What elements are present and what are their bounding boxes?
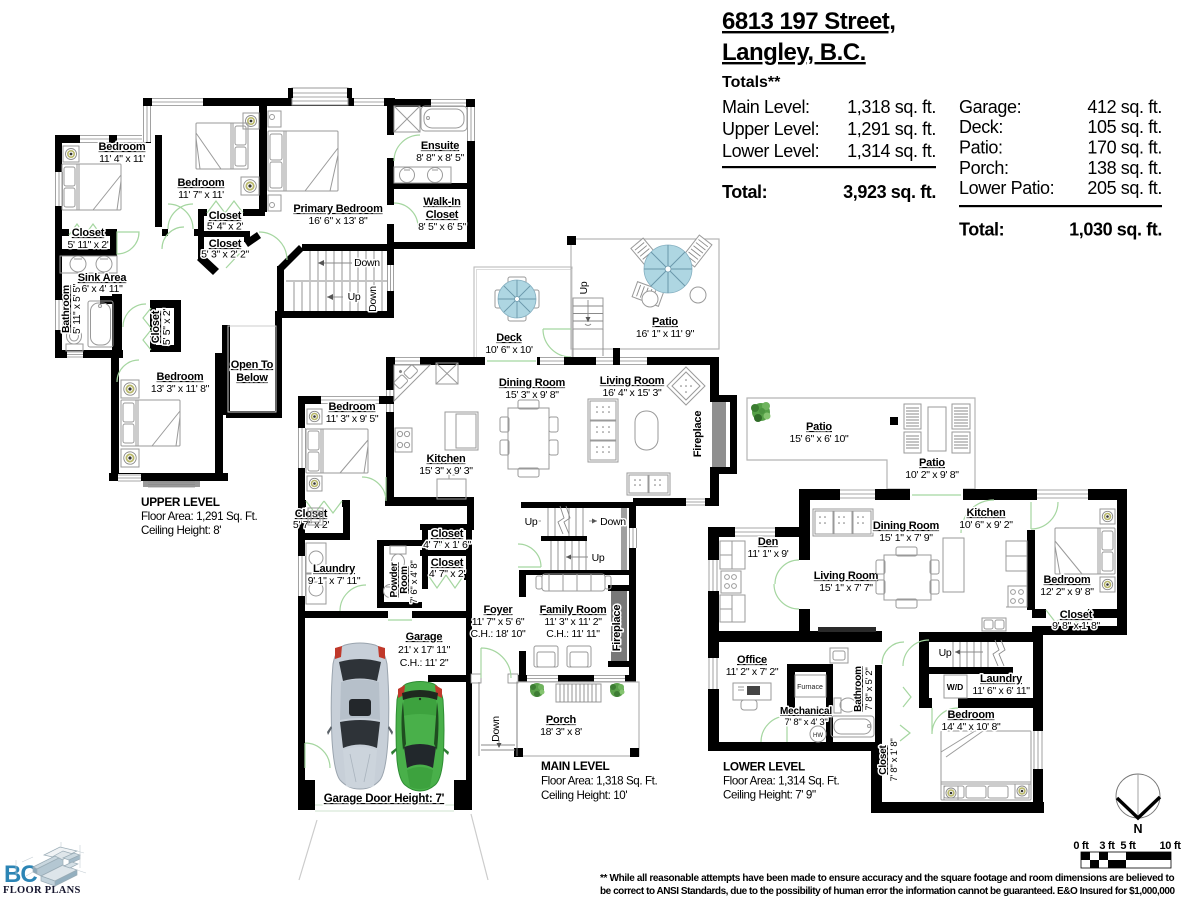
svg-text:15' 3" x 9' 3": 15' 3" x 9' 3" (419, 465, 473, 477)
svg-text:Dining Room: Dining Room (873, 520, 940, 532)
svg-text:Bedroom: Bedroom (157, 371, 204, 383)
svg-text:Fireplace: Fireplace (611, 605, 623, 652)
svg-text:5' 3" x 2' 2": 5' 3" x 2' 2" (201, 249, 249, 261)
svg-text:Down: Down (367, 286, 379, 312)
svg-text:Totals**: Totals** (722, 74, 781, 91)
svg-text:205 sq. ft.: 205 sq. ft. (1087, 178, 1162, 198)
svg-text:11' 6" x 6' 11": 11' 6" x 6' 11" (972, 685, 1030, 697)
svg-text:11' 4" x 11': 11' 4" x 11' (99, 153, 145, 165)
svg-text:Closet: Closet (426, 209, 459, 221)
svg-text:Garage:: Garage: (959, 97, 1021, 117)
svg-text:Patio: Patio (806, 421, 832, 433)
svg-text:Family Room: Family Room (540, 604, 607, 616)
svg-text:1,314 sq. ft.: 1,314 sq. ft. (847, 141, 936, 161)
svg-text:be correct to ANSI Standards,: be correct to ANSI Standards, due to the… (600, 886, 1175, 897)
svg-text:Lower Level:: Lower Level: (722, 141, 819, 161)
svg-text:11' 1" x 9': 11' 1" x 9' (747, 548, 788, 560)
svg-text:Mechanical: Mechanical (780, 706, 832, 717)
svg-text:Total:: Total: (722, 182, 767, 202)
svg-text:9' 1" x 7' 11": 9' 1" x 7' 11" (308, 575, 361, 587)
svg-text:16' 6" x 13' 8": 16' 6" x 13' 8" (309, 215, 368, 227)
svg-text:Up: Up (939, 647, 952, 659)
svg-text:Office: Office (737, 654, 767, 666)
svg-text:11' 3" x 11' 2": 11' 3" x 11' 2" (544, 616, 602, 628)
svg-text:10' 6" x 10': 10' 6" x 10' (485, 344, 533, 356)
svg-text:Up: Up (348, 291, 361, 303)
svg-text:11' 7" x 11': 11' 7" x 11' (178, 189, 224, 201)
svg-text:** While all reasonable attemp: ** While all reasonable attempts have be… (600, 873, 1174, 884)
svg-text:13' 3" x 11' 8": 13' 3" x 11' 8" (151, 383, 210, 395)
svg-text:UPPER LEVEL: UPPER LEVEL (141, 495, 220, 509)
svg-text:Closet: Closet (72, 227, 105, 239)
svg-text:MAIN LEVEL: MAIN LEVEL (541, 759, 610, 773)
svg-text:18' 3" x 8': 18' 3" x 8' (540, 726, 582, 738)
svg-text:12' 2" x 9' 8": 12' 2" x 9' 8" (1040, 586, 1094, 598)
svg-text:Living Room: Living Room (814, 570, 879, 582)
svg-text:11' 7" x 5' 6": 11' 7" x 5' 6" (472, 616, 525, 628)
svg-text:7' 8" x 1' 8": 7' 8" x 1' 8" (889, 739, 900, 782)
svg-text:Floor Area: 1,318 Sq. Ft.: Floor Area: 1,318 Sq. Ft. (541, 775, 657, 788)
svg-text:138 sq. ft.: 138 sq. ft. (1087, 158, 1162, 178)
svg-text:Kitchen: Kitchen (427, 453, 466, 465)
svg-text:Garage Door Height: 7': Garage Door Height: 7' (324, 793, 445, 805)
svg-text:15' 1" x 7' 9": 15' 1" x 7' 9" (879, 532, 933, 544)
svg-text:Dining Room: Dining Room (499, 377, 566, 389)
svg-text:10' 6" x 9' 2": 10' 6" x 9' 2" (959, 519, 1013, 531)
svg-text:16' 1" x 11' 9": 16' 1" x 11' 9" (636, 328, 695, 340)
svg-text:Total:: Total: (959, 220, 1004, 240)
svg-text:Bathroom: Bathroom (60, 285, 72, 333)
svg-text:C.H.: 11' 2": C.H.: 11' 2" (400, 657, 449, 669)
svg-text:4' 7" x 1' 6": 4' 7" x 1' 6" (423, 539, 471, 551)
svg-text:Ensuite: Ensuite (421, 140, 459, 152)
svg-text:Laundry: Laundry (980, 673, 1023, 685)
svg-text:1,291 sq. ft.: 1,291 sq. ft. (847, 119, 936, 139)
svg-text:Bedroom: Bedroom (948, 709, 995, 721)
svg-text:6813 197 Street,: 6813 197 Street, (722, 8, 895, 35)
svg-text:Porch: Porch (546, 714, 577, 726)
svg-text:Patio: Patio (919, 457, 945, 469)
svg-text:7' 6" x 4' 8": 7' 6" x 4' 8" (409, 561, 420, 604)
svg-text:8' 8" x 8' 5": 8' 8" x 8' 5" (416, 152, 464, 164)
svg-text:Patio: Patio (652, 316, 678, 328)
svg-text:Den: Den (758, 536, 779, 548)
svg-text:Ceiling Height: 8': Ceiling Height: 8' (141, 524, 221, 537)
svg-text:Up: Up (578, 281, 590, 294)
svg-text:Bedroom: Bedroom (329, 401, 376, 413)
svg-text:3 ft: 3 ft (1099, 840, 1115, 852)
svg-text:Patio:: Patio: (959, 138, 1003, 158)
svg-text:1,030 sq. ft.: 1,030 sq. ft. (1069, 220, 1162, 240)
svg-text:10 ft: 10 ft (1159, 840, 1181, 852)
svg-text:Kitchen: Kitchen (967, 507, 1006, 519)
svg-text:Open To: Open To (231, 359, 274, 371)
svg-text:5' 5" x 2': 5' 5" x 2' (161, 309, 173, 346)
svg-text:4' 7" x 2': 4' 7" x 2' (429, 568, 466, 580)
svg-text:Down: Down (600, 516, 626, 528)
svg-text:Ceiling Height: 7' 9": Ceiling Height: 7' 9" (723, 789, 816, 802)
svg-text:C.H.: 11' 11": C.H.: 11' 11" (546, 628, 600, 640)
svg-text:Closet: Closet (878, 744, 889, 774)
svg-text:Porch:: Porch: (959, 158, 1009, 178)
svg-text:Lower Patio:: Lower Patio: (959, 178, 1054, 198)
svg-text:21' x 17' 11": 21' x 17' 11" (398, 644, 451, 656)
svg-text:11' 3" x 9' 5": 11' 3" x 9' 5" (326, 413, 379, 425)
svg-text:Foyer: Foyer (484, 604, 514, 616)
svg-text:5 ft: 5 ft (1120, 840, 1136, 852)
svg-text:Bathroom: Bathroom (853, 666, 864, 712)
svg-text:11' 2" x 7' 2": 11' 2" x 7' 2" (726, 666, 779, 678)
svg-text:6' x 4' 11": 6' x 4' 11" (81, 283, 123, 295)
svg-text:Below: Below (236, 372, 268, 384)
svg-text:5' 11" x 2': 5' 11" x 2' (67, 239, 108, 251)
svg-text:BC: BC (4, 861, 37, 888)
svg-text:Down: Down (354, 257, 380, 269)
svg-text:Walk-In: Walk-In (423, 196, 461, 208)
svg-text:Ceiling Height: 10': Ceiling Height: 10' (541, 789, 627, 802)
svg-text:Floor Area: 1,314 Sq. Ft.: Floor Area: 1,314 Sq. Ft. (723, 775, 839, 788)
svg-text:Deck:: Deck: (959, 117, 1003, 137)
svg-text:N: N (1133, 822, 1142, 836)
svg-text:W/D: W/D (947, 682, 964, 692)
svg-text:Primary Bedroom: Primary Bedroom (293, 203, 383, 215)
svg-text:15' 3" x 9' 8": 15' 3" x 9' 8" (505, 389, 559, 401)
svg-text:170 sq. ft.: 170 sq. ft. (1087, 138, 1162, 158)
svg-text:Floor Area: 1,291 Sq. Ft.: Floor Area: 1,291 Sq. Ft. (141, 510, 257, 523)
svg-text:Bedroom: Bedroom (99, 141, 146, 153)
svg-text:5' 4" x 2': 5' 4" x 2' (207, 221, 244, 233)
svg-text:Furnace: Furnace (797, 684, 823, 691)
svg-text:15' 6" x 6' 10": 15' 6" x 6' 10" (790, 433, 849, 445)
svg-text:5' 11" x 5' 5": 5' 11" x 5' 5" (72, 283, 83, 334)
svg-text:C.H.: 18' 10": C.H.: 18' 10" (471, 628, 527, 640)
svg-text:Deck: Deck (496, 332, 523, 344)
svg-text:16' 4" x 15' 3": 16' 4" x 15' 3" (603, 387, 662, 399)
svg-text:Main Level:: Main Level: (722, 97, 810, 117)
svg-text:1,318 sq. ft.: 1,318 sq. ft. (847, 97, 936, 117)
svg-text:Langley, B.C.: Langley, B.C. (722, 39, 866, 66)
svg-text:Fireplace: Fireplace (692, 411, 704, 458)
svg-text:8' 5" x 6' 5": 8' 5" x 6' 5" (418, 221, 466, 233)
svg-text:Up: Up (592, 552, 605, 564)
svg-text:14' 4" x 10' 8": 14' 4" x 10' 8" (942, 721, 1001, 733)
svg-text:10' 2" x 9' 8": 10' 2" x 9' 8" (905, 469, 959, 481)
svg-text:LOWER LEVEL: LOWER LEVEL (723, 760, 805, 774)
svg-text:Up: Up (525, 516, 538, 528)
svg-text:105 sq. ft.: 105 sq. ft. (1087, 117, 1162, 137)
svg-text:HW: HW (813, 733, 823, 739)
svg-text:15' 1" x 7' 7": 15' 1" x 7' 7" (819, 582, 873, 594)
svg-text:Garage: Garage (406, 631, 443, 643)
svg-text:Bedroom: Bedroom (178, 177, 225, 189)
svg-text:Laundry: Laundry (313, 563, 356, 575)
svg-text:Bedroom: Bedroom (1044, 574, 1091, 586)
svg-text:412 sq. ft.: 412 sq. ft. (1087, 97, 1162, 117)
svg-text:Living Room: Living Room (600, 375, 665, 387)
svg-text:7' 8" x 5' 2": 7' 8" x 5' 2" (864, 668, 875, 711)
svg-text:Down: Down (490, 716, 502, 742)
svg-text:FLOOR PLANS: FLOOR PLANS (3, 885, 81, 896)
svg-text:9' 8" x 1' 8": 9' 8" x 1' 8" (1052, 620, 1100, 632)
svg-text:Upper Level:: Upper Level: (722, 119, 819, 139)
svg-text:3,923 sq. ft.: 3,923 sq. ft. (843, 182, 936, 202)
svg-text:0 ft: 0 ft (1073, 840, 1089, 852)
